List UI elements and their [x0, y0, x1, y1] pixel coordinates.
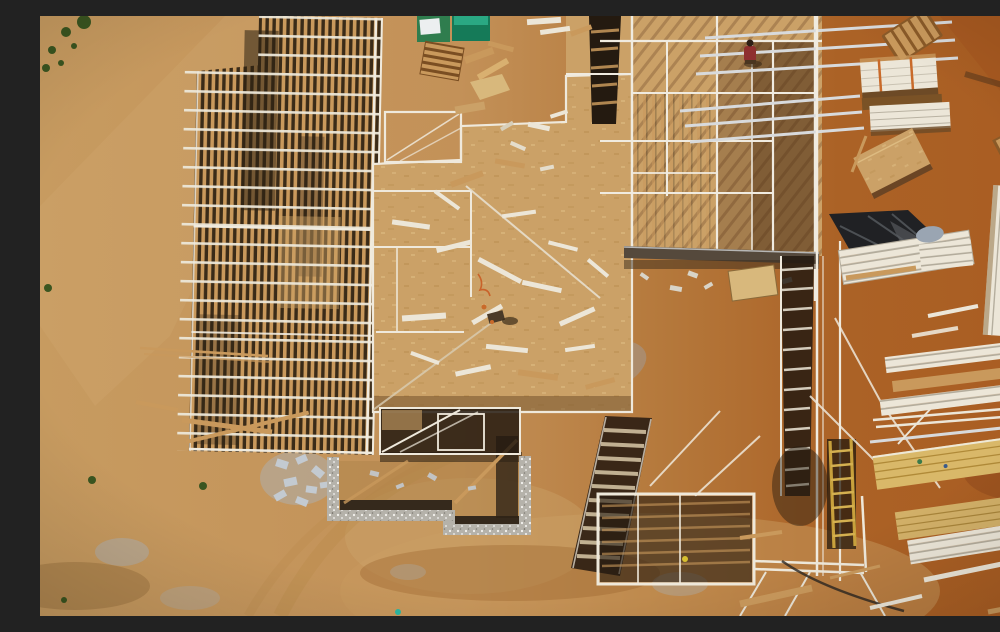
scene-canvas	[40, 16, 1000, 616]
vignette	[40, 16, 1000, 616]
construction-site-photo	[40, 16, 1000, 616]
